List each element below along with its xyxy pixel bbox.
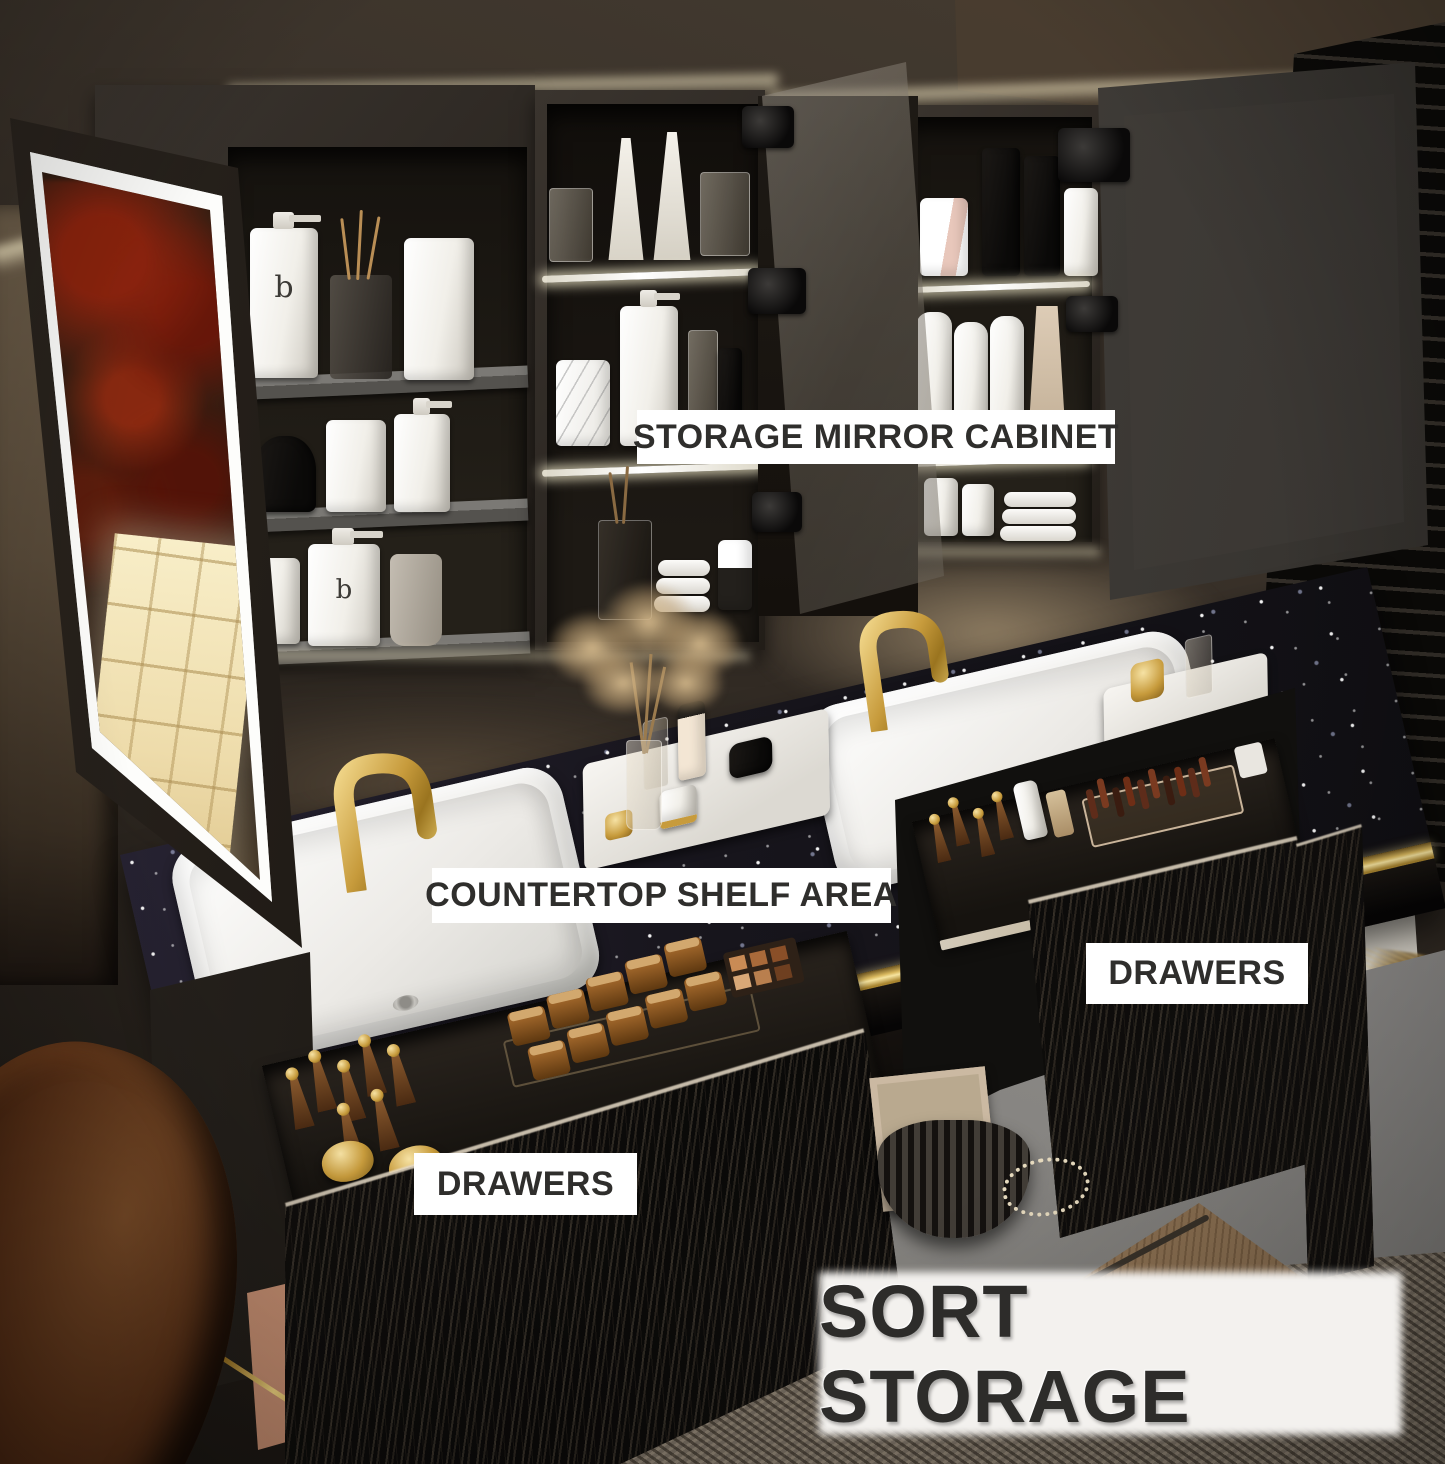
label-sort-storage: SORT STORAGE [819,1272,1402,1435]
photo-vignette [0,0,1445,1464]
label-storage-mirror-cabinet: STORAGE MIRROR CABINET [637,410,1115,464]
label-drawers-left: DRAWERS [414,1153,637,1215]
label-countertop-shelf-area: COUNTERTOP SHELF AREA [432,868,891,923]
label-sort-storage-box: SORT STORAGE [819,1272,1402,1435]
label-drawers-right: DRAWERS [1086,943,1308,1004]
bathroom-vanity-photo: b b [0,0,1445,1464]
